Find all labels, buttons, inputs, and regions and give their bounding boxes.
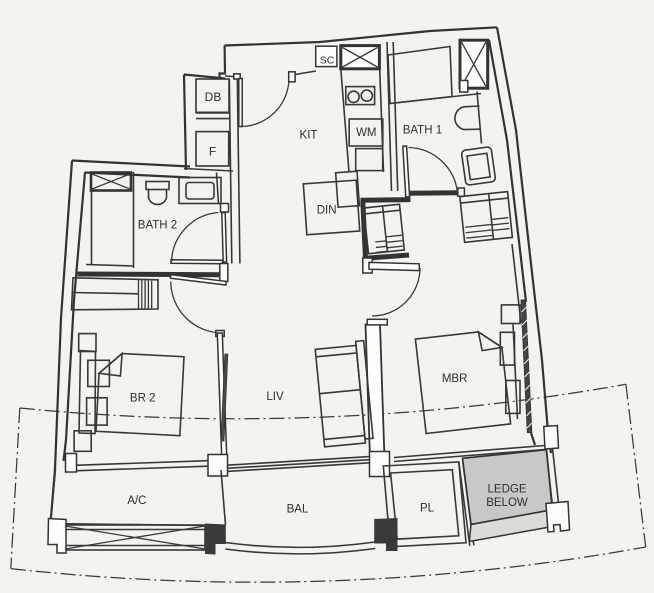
svg-text:F: F [209, 145, 216, 159]
svg-text:WM: WM [356, 127, 376, 139]
svg-text:BATH 2: BATH 2 [138, 220, 177, 232]
svg-text:BELOW: BELOW [486, 497, 528, 509]
svg-text:PL: PL [420, 503, 435, 515]
svg-text:LIV: LIV [266, 391, 284, 403]
svg-text:LEDGE: LEDGE [488, 484, 527, 496]
svg-text:MBR: MBR [442, 373, 468, 385]
svg-text:DB: DB [205, 90, 222, 104]
svg-text:DIN: DIN [317, 205, 337, 217]
svg-text:BAL: BAL [287, 503, 309, 515]
svg-text:KIT: KIT [300, 129, 318, 141]
svg-text:SC: SC [320, 55, 335, 67]
svg-text:BR 2: BR 2 [130, 392, 156, 404]
svg-text:BATH 1: BATH 1 [403, 125, 442, 137]
svg-text:A/C: A/C [127, 495, 146, 507]
